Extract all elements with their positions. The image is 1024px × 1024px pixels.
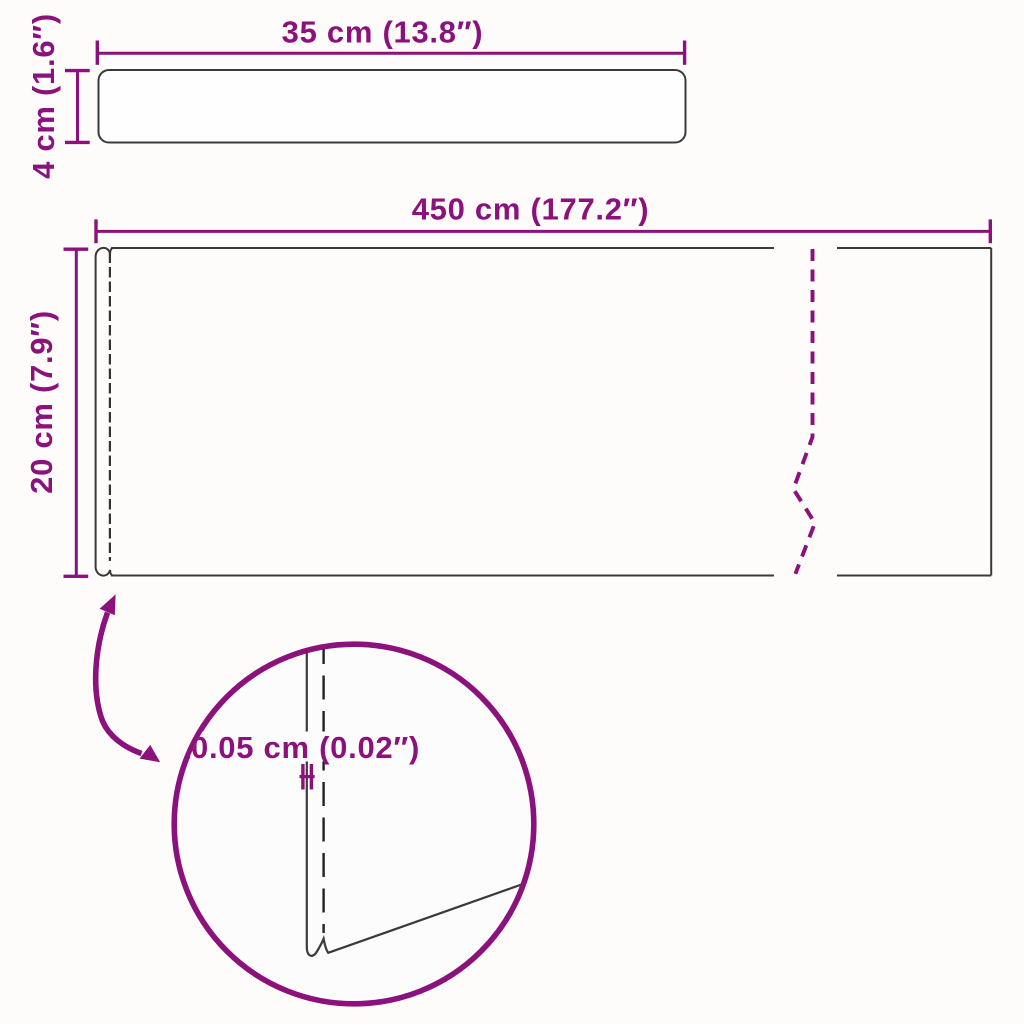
svg-text:20 cm (7.9″): 20 cm (7.9″) [24, 310, 59, 494]
svg-text:450 cm (177.2″): 450 cm (177.2″) [412, 192, 650, 227]
svg-text:35 cm (13.8″): 35 cm (13.8″) [282, 15, 484, 50]
svg-text:0.05 cm (0.02″): 0.05 cm (0.02″) [191, 730, 420, 765]
svg-text:4 cm (1.6″): 4 cm (1.6″) [26, 13, 61, 179]
